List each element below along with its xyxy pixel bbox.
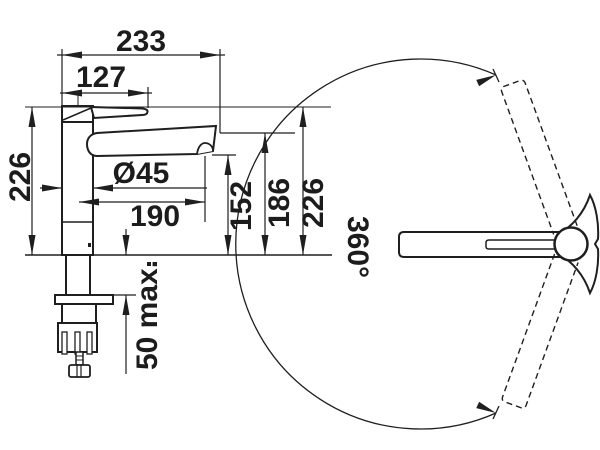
top-view — [236, 59, 598, 429]
dashed-spout-up — [500, 79, 577, 234]
arc-arrow-top — [476, 75, 496, 86]
dim-deck-thickness-label: 50 max. — [131, 250, 161, 380]
fixing-screw-head — [69, 365, 90, 377]
dashed-spout-down — [501, 254, 578, 409]
top-view-body-circle — [555, 228, 588, 261]
mounting-spacer-block — [62, 304, 96, 323]
dim-handle-reach-label: 127 — [61, 61, 141, 91]
mounting-shank — [66, 255, 90, 295]
faucet-dimension-drawing: 233 127 226 Ø45 190 152 186 226 50 max. … — [0, 0, 600, 450]
nut-prong-right — [87, 332, 92, 354]
drawing-dot — [88, 243, 91, 247]
dim-overall-reach-label: 233 — [101, 25, 181, 55]
fixing-stud — [76, 352, 83, 365]
dim-height-left-label: 226 — [4, 137, 34, 217]
dim-height-right-label: 226 — [297, 163, 327, 243]
dim-spout-top-height-label: 186 — [263, 163, 293, 243]
faucet-handle-lever — [91, 107, 148, 118]
arc-end-tick-top — [493, 69, 499, 82]
arc-arrow-bottom — [476, 402, 496, 413]
top-view-lever-inlay — [486, 240, 560, 249]
dim-spout-reach-label: 190 — [115, 200, 195, 230]
dim-body-diameter-label: Ø45 — [101, 157, 181, 187]
nut-prong-middle — [75, 332, 80, 354]
nut-prong-left — [62, 332, 67, 354]
mounting-flange — [55, 295, 113, 304]
dim-outlet-height-label: 152 — [225, 166, 255, 246]
swivel-angle-label: 360° — [344, 207, 374, 287]
arc-end-tick-bottom — [493, 406, 499, 419]
